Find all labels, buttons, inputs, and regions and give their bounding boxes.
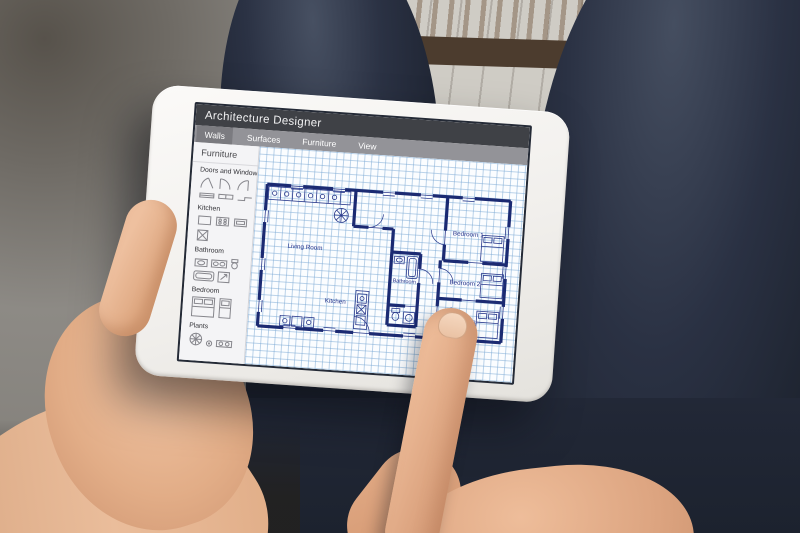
- washbasin-icon[interactable]: [193, 257, 209, 268]
- room-label-kitchen: Kitchen: [325, 297, 347, 305]
- sidebar-section-plants: Plants: [180, 318, 247, 351]
- sidebar-section-kitchen: Kitchen: [187, 200, 255, 246]
- shower-icon[interactable]: [216, 271, 231, 284]
- sidebar-section-bedroom: Bedroom: [182, 282, 249, 322]
- door-swing-corner-icon[interactable]: [235, 178, 252, 192]
- plant-small-icon[interactable]: [205, 339, 214, 348]
- double-washbasin-icon[interactable]: [210, 258, 228, 269]
- wall-step-line-icon[interactable]: [236, 194, 254, 203]
- door-swing-single-icon[interactable]: [217, 177, 234, 191]
- dishwasher-icon[interactable]: [232, 216, 249, 230]
- sink-unit-icon[interactable]: [195, 228, 210, 242]
- single-bed-icon[interactable]: [217, 297, 233, 320]
- door-swing-open-icon[interactable]: [199, 175, 216, 189]
- photo-scene: Architecture Designer Walls Surfaces Fur…: [0, 0, 800, 533]
- counter-icon[interactable]: [196, 213, 213, 227]
- double-bed-icon[interactable]: [190, 295, 216, 319]
- window-sill-icon[interactable]: [217, 192, 235, 202]
- fingernail: [436, 310, 469, 341]
- room-label-bedroom-2: Bedroom 2: [449, 279, 481, 288]
- room-label-living-room: Living Room: [287, 243, 322, 252]
- stove-icon[interactable]: [214, 215, 231, 229]
- floor-plan: Living Room Kitchen Bathroom Bedroom 1 B…: [253, 180, 515, 347]
- room-label-bedroom-1: Bedroom 1: [453, 230, 485, 239]
- toilet-icon[interactable]: [229, 258, 240, 271]
- plant-large-icon[interactable]: [188, 331, 204, 347]
- tablet-device: Architecture Designer Walls Surfaces Fur…: [134, 84, 571, 403]
- bathtub-icon[interactable]: [192, 269, 215, 283]
- window-icon[interactable]: [198, 190, 216, 200]
- sidebar-section-doors-and-windows: Doors and Windows: [190, 162, 257, 204]
- drawing-canvas[interactable]: Living Room Kitchen Bathroom Bedroom 1 B…: [244, 147, 527, 385]
- tablet-screen: Architecture Designer Walls Surfaces Fur…: [177, 102, 532, 385]
- room-label-bathroom: Bathroom: [392, 278, 416, 286]
- planter-box-icon[interactable]: [215, 339, 234, 349]
- sidebar-section-bathroom: Bathroom: [184, 242, 252, 286]
